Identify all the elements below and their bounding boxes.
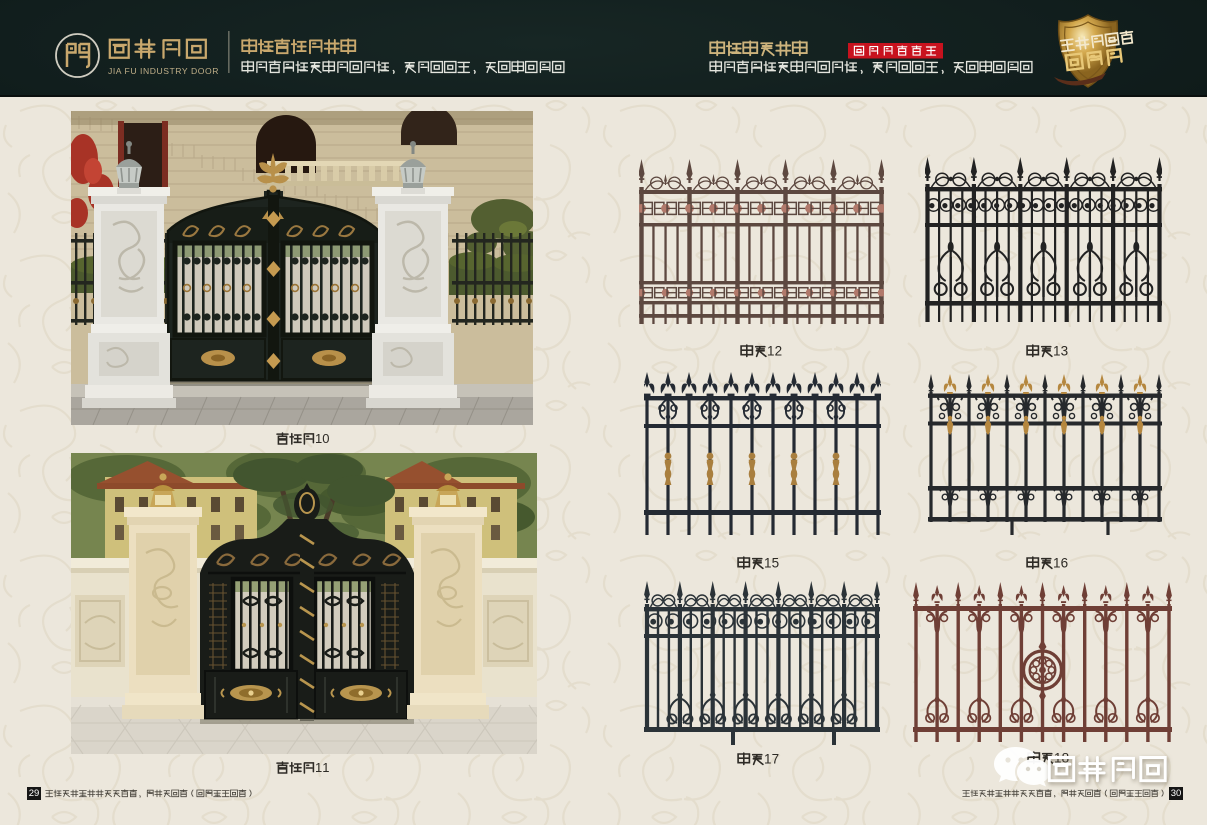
svg-text:JIA FU INDUSTRY DOOR: JIA FU INDUSTRY DOOR bbox=[108, 66, 219, 76]
svg-text:3: 3 bbox=[1061, 344, 1069, 359]
svg-text:2: 2 bbox=[775, 344, 783, 359]
svg-text:0: 0 bbox=[322, 431, 329, 446]
svg-text:1: 1 bbox=[322, 760, 329, 775]
svg-text:1: 1 bbox=[315, 760, 322, 775]
svg-text:5: 5 bbox=[772, 556, 780, 571]
svg-text:1: 1 bbox=[1053, 556, 1061, 571]
svg-text:6: 6 bbox=[1061, 556, 1069, 571]
svg-text:1: 1 bbox=[764, 752, 772, 767]
svg-text:1: 1 bbox=[1053, 344, 1061, 359]
svg-text:1: 1 bbox=[315, 431, 322, 446]
svg-text:1: 1 bbox=[764, 556, 772, 571]
svg-text:7: 7 bbox=[772, 752, 780, 767]
svg-text:1: 1 bbox=[767, 344, 775, 359]
